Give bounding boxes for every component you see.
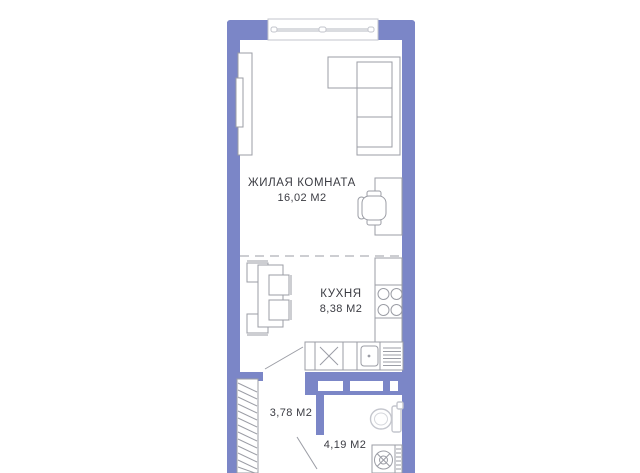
faucet-icon [368, 355, 371, 358]
toilet [371, 402, 404, 432]
vent-shaft [350, 381, 383, 391]
hallway-bathroom-divider-wall [316, 395, 324, 435]
kitchen-label: КУХНЯ [320, 288, 361, 300]
dining-chair [269, 275, 289, 295]
living-room-area: 16,02 М2 [277, 192, 326, 204]
dining-chair [269, 300, 289, 320]
vent-shaft [318, 381, 343, 391]
toilet-button [397, 402, 403, 409]
sofa-outline [328, 57, 400, 155]
washing-machine [372, 445, 402, 473]
toilet-tank [392, 406, 401, 432]
living-room: ЖИЛАЯ КОМНАТА 16,02 М2 [236, 53, 402, 235]
counter [375, 258, 402, 343]
kitchen: КУХНЯ 8,38 М2 [247, 258, 403, 370]
hallway-area: 3,78 М2 [270, 407, 313, 419]
bathroom-area: 4,19 М2 [324, 439, 367, 451]
window-handle-icon [271, 27, 277, 32]
bathroom-door-swing [297, 437, 317, 469]
dining-set [247, 261, 291, 335]
kitchen-counter-bottom [305, 342, 403, 370]
window-handle-icon [319, 27, 326, 32]
kitchen-area: 8,38 М2 [320, 303, 363, 315]
corner-sofa [328, 57, 400, 155]
right-wall [402, 22, 415, 473]
hall-wardrobe [237, 379, 258, 473]
vent-shaft [390, 381, 398, 391]
office-chair [358, 191, 386, 225]
floor-plan-canvas: ЖИЛАЯ КОМНАТА 16,02 М2 [0, 0, 640, 473]
window-handle-icon [368, 27, 374, 32]
window [268, 19, 378, 40]
kitchen-counter-right [375, 258, 402, 343]
toilet-bowl [371, 409, 392, 429]
kitchen-door-swing [265, 347, 303, 369]
living-room-label: ЖИЛАЯ КОМНАТА [248, 177, 356, 189]
floor-plan: ЖИЛАЯ КОМНАТА 16,02 М2 [0, 0, 640, 473]
bathroom: 4,19 М2 [324, 402, 403, 473]
chair-seat [362, 196, 386, 220]
wardrobe-door [236, 78, 243, 127]
